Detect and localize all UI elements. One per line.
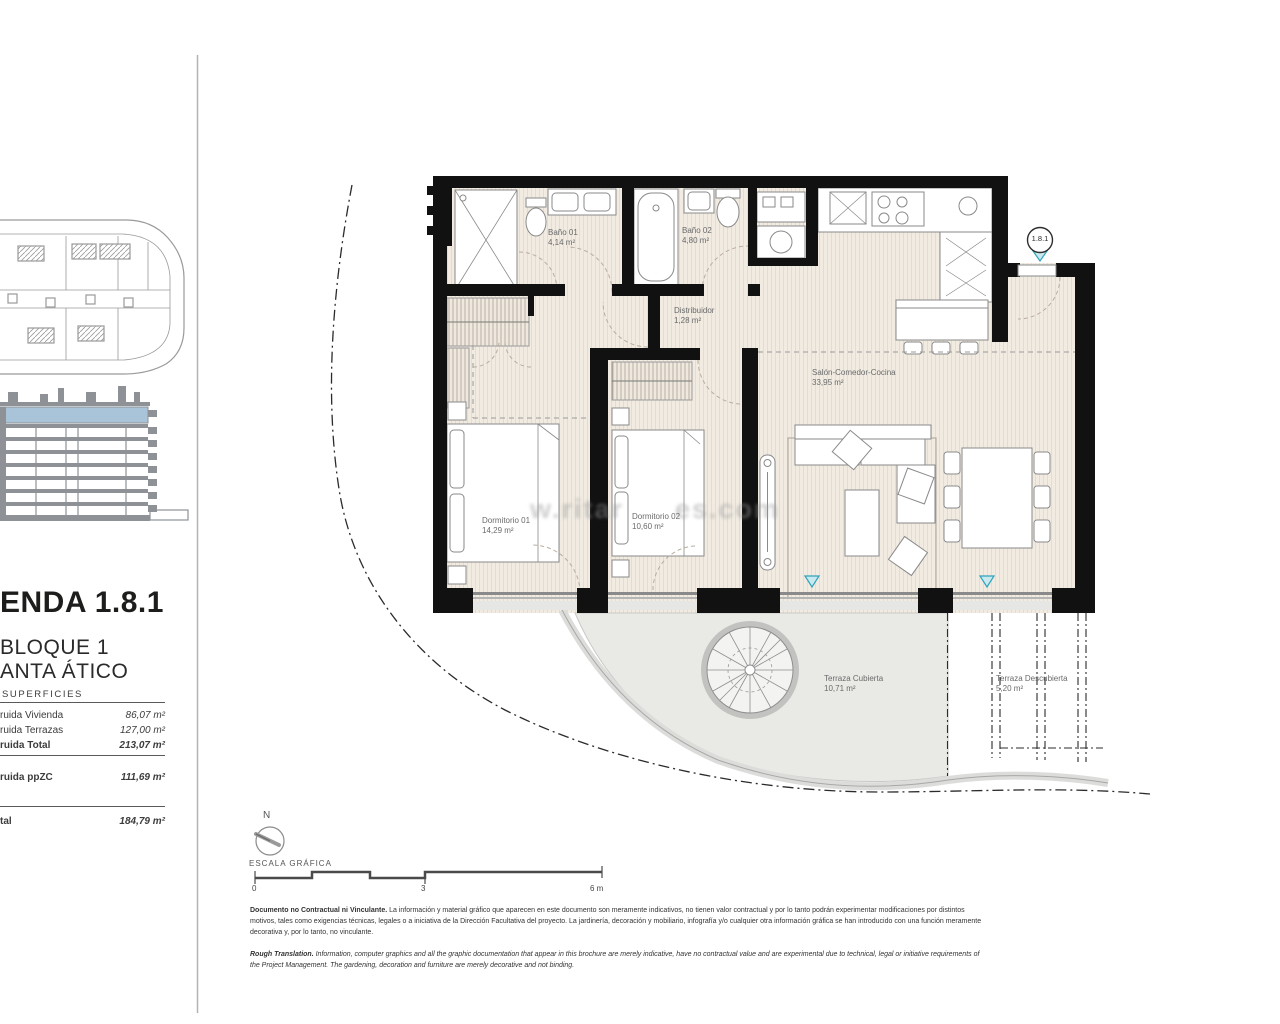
surface-label: tal	[0, 816, 12, 827]
surface-row: ruida Vivienda 86,07 m²	[0, 710, 165, 721]
surface-label: ruida ppZC	[0, 772, 53, 783]
building-elevation-thumbnail	[0, 386, 188, 521]
disclaimer-spanish-lead: Documento no Contractual ni Vinculante.	[250, 907, 387, 914]
surface-label: ruida Vivienda	[0, 710, 63, 721]
room-label-banio02: Baño 024,80 m²	[682, 226, 712, 247]
divider-rule	[0, 806, 165, 807]
north-label: N	[263, 810, 270, 821]
unit-marker-label: 1.8.1	[1024, 234, 1056, 243]
surface-value: 127,00 m²	[120, 725, 165, 736]
room-label-terraza-descubierta: Terraza Descubierta5,20 m²	[996, 674, 1068, 695]
room-label-distribuidor: Distribuidor1,28 m²	[674, 306, 714, 327]
surface-row: ruida Total 213,07 m²	[0, 740, 165, 751]
surface-label: ruida Total	[0, 740, 50, 751]
highlighted-floor	[0, 407, 148, 423]
spiral-staircase	[704, 624, 796, 716]
surface-row: ruida ppZC 111,69 m²	[0, 772, 165, 783]
disclaimer-english-lead: Rough Translation.	[250, 951, 314, 958]
floor-subtitle: ANTA ÁTICO	[0, 660, 128, 684]
surface-row: ruida Terrazas 127,00 m²	[0, 725, 165, 736]
surfaces-heading: SUPERFICIES	[2, 689, 83, 700]
room-label-salon: Salón-Comedor-Cocina33,95 m²	[812, 368, 896, 389]
block-subtitle: BLOQUE 1	[0, 636, 109, 660]
scale-bar	[255, 866, 602, 884]
surface-value: 86,07 m²	[126, 710, 165, 721]
surface-label: ruida Terrazas	[0, 725, 63, 736]
scale-tick-6: 6 m	[590, 884, 603, 893]
divider-rule	[0, 702, 165, 703]
divider-rule	[0, 755, 165, 756]
surface-value: 111,69 m²	[121, 772, 165, 783]
entrance-door	[1018, 265, 1056, 276]
disclaimer-spanish: Documento no Contractual ni Vinculante. …	[250, 906, 987, 939]
room-label-dormitorio01: Dormitorio 0114,29 m²	[482, 516, 530, 537]
scale-caption: ESCALA GRÁFICA	[249, 859, 332, 868]
scale-tick-3: 3	[421, 884, 425, 893]
apartment-plan	[255, 168, 1150, 884]
surface-row: tal 184,79 m²	[0, 816, 165, 827]
brochure-page: w.ritares.com ENDA 1.8.1 BLOQUE 1 ANTA Á…	[0, 0, 1280, 1024]
disclaimer-english-body: Information, computer graphics and all t…	[250, 951, 979, 969]
scale-tick-0: 0	[252, 884, 256, 893]
room-label-dormitorio02: Dormitorio 0210,60 m²	[632, 512, 680, 533]
surface-value: 213,07 m²	[119, 740, 165, 751]
room-label-banio01: Baño 014,14 m²	[548, 228, 578, 249]
compass	[256, 827, 284, 855]
surface-value: 184,79 m²	[119, 816, 165, 827]
disclaimer-english: Rough Translation. Information, computer…	[250, 950, 987, 972]
site-plan-thumbnail	[0, 220, 184, 374]
page-title: ENDA 1.8.1	[0, 586, 164, 620]
room-label-terraza-cubierta: Terraza Cubierta10,71 m²	[824, 674, 883, 695]
